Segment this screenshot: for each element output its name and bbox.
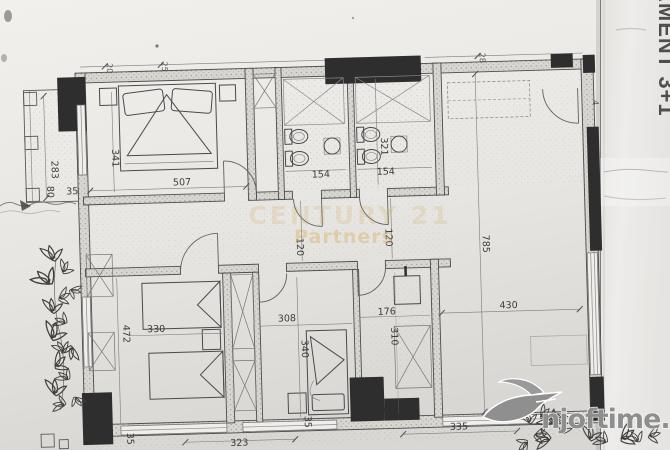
dim-341: 341 (109, 149, 121, 167)
watermark-partners: Partners (294, 226, 394, 248)
dim-785: 785 (480, 235, 492, 253)
dim-340: 340 (298, 340, 310, 358)
dim-154-a: 154 (312, 169, 330, 181)
shear-wall (551, 53, 573, 68)
apartment-type-label: AMENT 3+1 (654, 0, 670, 117)
wall-corridor-bottom-c (286, 261, 357, 271)
side-label: AMENT 3+1 (654, 0, 670, 117)
dim-176: 176 (378, 306, 396, 318)
wall-corridor-top-b (256, 191, 292, 200)
scan-speckle (352, 17, 354, 19)
dim-472: 472 (120, 325, 132, 343)
logo-text: njoftime.al (541, 404, 670, 435)
wall-corridor-bottom-d (385, 259, 450, 269)
dim-321: 321 (378, 137, 390, 155)
dim-20: 20 (105, 63, 114, 73)
dim-35: 35 (66, 186, 78, 197)
dim-154-b: 154 (377, 166, 395, 178)
shear-wall (583, 55, 595, 73)
dim-28: 28 (478, 53, 487, 63)
dim-430: 430 (499, 300, 517, 312)
dim-283: 283 (48, 161, 60, 179)
dim-330: 330 (147, 324, 165, 336)
shear-wall (82, 392, 113, 445)
dim-310: 310 (388, 327, 400, 345)
dim-35-c: 35 (302, 416, 313, 428)
dim-308: 308 (278, 313, 296, 325)
dim-80: 80 (44, 186, 55, 198)
dim-4: 4 (591, 100, 600, 105)
scan-speckle (1, 54, 7, 62)
scan-speckle (155, 44, 158, 47)
dim-507: 507 (173, 177, 191, 189)
scan-speckle (4, 10, 12, 22)
shear-wall (384, 398, 420, 421)
dim-35-b: 35 (124, 433, 135, 445)
shear-wall (350, 377, 385, 422)
scanned-floorplan-photo: 283 341 80 35 507 154 321 154 785 430 12… (0, 0, 670, 450)
shear-wall (325, 56, 422, 85)
dim-335: 335 (450, 421, 468, 433)
dim-323: 323 (230, 437, 248, 449)
dim-25: 25 (160, 61, 169, 71)
